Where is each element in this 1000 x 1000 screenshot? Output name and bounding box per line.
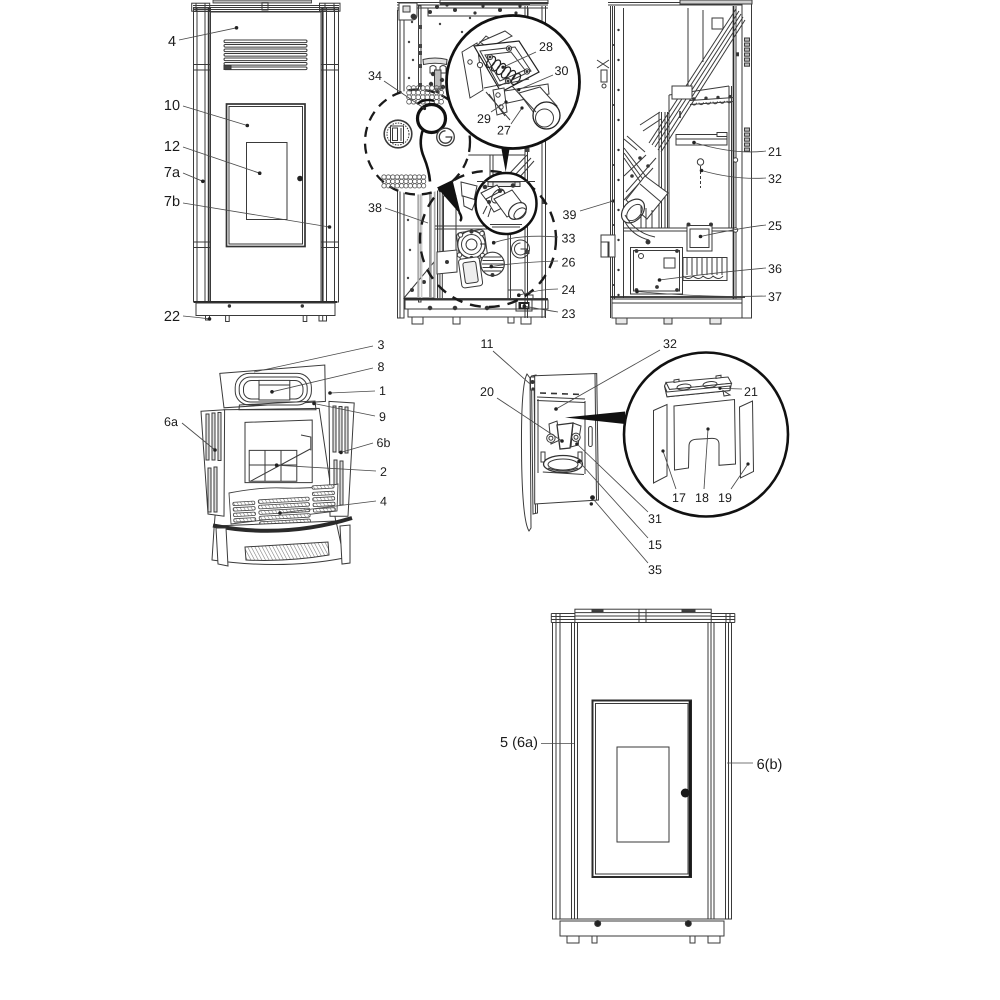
svg-text:29: 29 xyxy=(477,112,491,126)
svg-text:39: 39 xyxy=(563,208,577,222)
svg-text:20: 20 xyxy=(480,385,494,399)
svg-text:6a: 6a xyxy=(164,415,178,429)
svg-text:22: 22 xyxy=(164,309,180,325)
svg-text:35: 35 xyxy=(648,563,662,577)
svg-text:4: 4 xyxy=(168,34,176,50)
svg-text:18: 18 xyxy=(695,491,709,505)
svg-text:32: 32 xyxy=(663,337,677,351)
svg-text:17: 17 xyxy=(672,491,686,505)
svg-text:30: 30 xyxy=(555,64,569,78)
svg-text:15: 15 xyxy=(648,538,662,552)
svg-text:6(b): 6(b) xyxy=(757,757,783,773)
svg-text:7a: 7a xyxy=(164,165,181,181)
svg-text:12: 12 xyxy=(164,139,180,155)
svg-text:1: 1 xyxy=(379,384,386,398)
svg-text:9: 9 xyxy=(379,410,386,424)
svg-text:4: 4 xyxy=(380,495,387,509)
svg-text:27: 27 xyxy=(497,124,511,138)
svg-text:8: 8 xyxy=(378,360,385,374)
svg-text:37: 37 xyxy=(768,290,782,304)
svg-text:2: 2 xyxy=(380,465,387,479)
svg-text:28: 28 xyxy=(539,40,553,54)
svg-text:7b: 7b xyxy=(164,194,180,210)
svg-text:34: 34 xyxy=(368,69,382,83)
svg-text:21: 21 xyxy=(768,145,782,159)
svg-text:31: 31 xyxy=(648,512,662,526)
svg-text:36: 36 xyxy=(768,262,782,276)
svg-text:3: 3 xyxy=(378,338,385,352)
svg-text:38: 38 xyxy=(368,201,382,215)
svg-text:25: 25 xyxy=(768,219,782,233)
svg-text:32: 32 xyxy=(768,172,782,186)
svg-text:10: 10 xyxy=(164,98,180,114)
svg-text:19: 19 xyxy=(718,491,732,505)
svg-text:11: 11 xyxy=(481,337,494,351)
svg-text:5 (6a): 5 (6a) xyxy=(500,735,538,751)
svg-text:33: 33 xyxy=(562,232,576,246)
svg-text:26: 26 xyxy=(562,256,576,270)
svg-text:6b: 6b xyxy=(377,436,391,450)
svg-text:24: 24 xyxy=(562,283,576,297)
svg-text:21: 21 xyxy=(744,385,758,399)
svg-text:23: 23 xyxy=(562,307,576,321)
